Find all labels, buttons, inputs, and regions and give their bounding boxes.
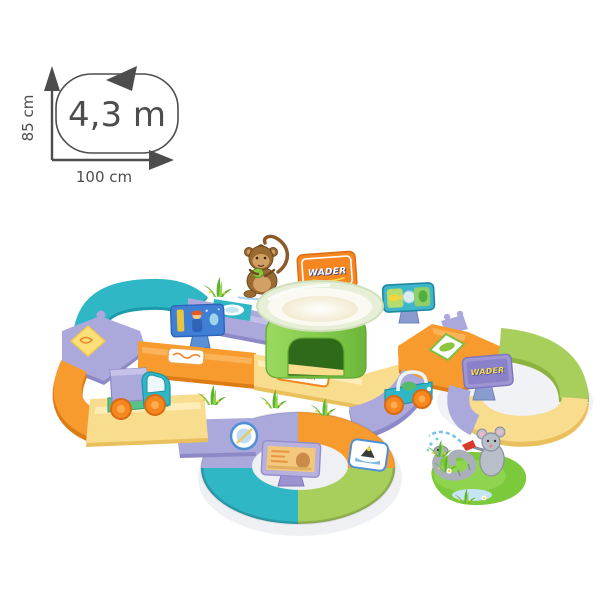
water-spray — [429, 432, 461, 442]
width-arrow-head-icon — [149, 150, 174, 170]
grass-tuft — [203, 277, 232, 297]
width-label: 100 cm — [76, 168, 132, 186]
truck-windshield — [147, 375, 165, 393]
giraffe-figure — [177, 309, 185, 331]
funnel-tower — [257, 281, 383, 378]
fish-billboard — [382, 283, 434, 323]
hose-nozzle — [462, 440, 476, 451]
dimension-diagram: 4,3 m 85 cm 100 cm — [19, 66, 178, 186]
jeep-seat — [402, 382, 417, 391]
track-length-label: 4,3 m — [68, 95, 166, 135]
height-label: 85 cm — [19, 95, 37, 142]
product-image: 4,3 m 85 cm 100 cm WADER WADER — [0, 0, 600, 600]
mouse-head — [482, 433, 500, 451]
height-arrow-head-icon — [44, 66, 60, 91]
funnel-bowl — [282, 296, 358, 322]
playset-scene: 4,3 m 85 cm 100 cm WADER WADER — [0, 0, 600, 600]
aquarium-billboard — [170, 304, 224, 348]
